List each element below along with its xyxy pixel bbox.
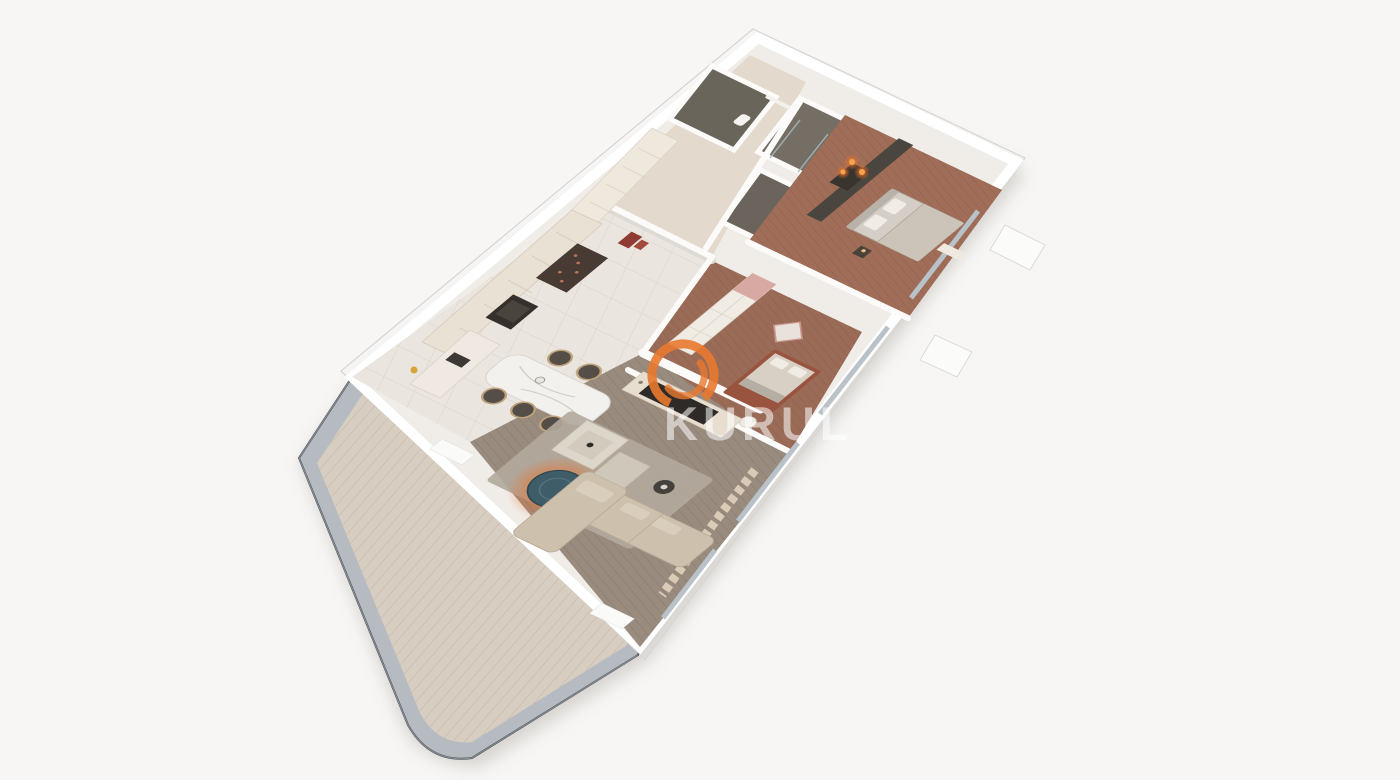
wall-art [774,322,802,342]
floor-plan-image: KURUL [0,0,1400,780]
fruit-bowl [411,367,418,374]
open-window-sash [990,225,1045,270]
floor-plan-render: KURUL [0,0,1400,780]
open-window-sash [920,335,972,377]
watermark-text: KURUL [664,397,853,450]
